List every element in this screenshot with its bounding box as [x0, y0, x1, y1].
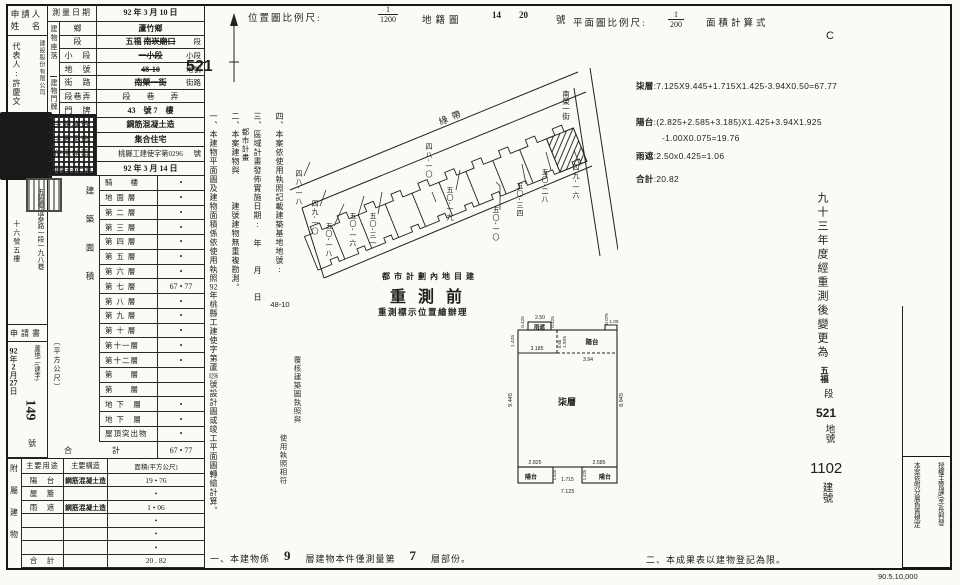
calc-line-balcony-2: -1.00X0.075=19.76 — [662, 133, 740, 143]
dim-3.185: 3.185 — [531, 346, 544, 352]
floor-label: 第 層 — [100, 368, 158, 382]
floor-plan-drawing: 雨遮 2.50 0.425 0.425 0.075 1.00 1.425 3.1… — [495, 310, 670, 525]
note-4-lot-number: 48-10 — [264, 300, 296, 309]
handwritten-lot-521: 521 — [186, 58, 213, 76]
floor-area-block: 建築面積 （平方公尺） 騎 樓 • 地 面 層 • 第 二 層 — [48, 176, 204, 442]
seal-stamp-large — [0, 112, 52, 180]
subsection-label: 小 段 — [60, 49, 97, 62]
dim-8.945: 8.945 — [619, 393, 625, 407]
stamp-retest-sub: 重測標示位置繪辦理 — [378, 306, 468, 318]
floor-row: 屋頂突出物 • — [100, 427, 204, 442]
note-4: 四、本案依使用執照記載建築基地地號: — [274, 112, 285, 307]
note-1: 一、本建物平面圖及建物面積係依使用執照92年桃縣工建使字第蘆0296號設計圖或竣… — [208, 112, 219, 562]
application-label: 申請書 — [6, 325, 48, 342]
cadastral-map-label: 地籍圖 — [422, 12, 463, 26]
annex-row: 合 計 20 . 82 — [22, 555, 204, 568]
balcony-label-top: 陽台 — [586, 337, 600, 346]
location-scale-numerator: 1 — [378, 5, 398, 15]
complete-date-row: 建築完成日期 92 年 3 月 14 日 — [48, 162, 204, 177]
floor-label: 騎 樓 — [100, 176, 158, 190]
floor-label: 第 八 層 — [100, 294, 158, 308]
subsection-strike: 一小段 — [139, 50, 163, 61]
complete-date-label: 建築完成日期 — [48, 162, 97, 176]
section-row: 段 五福 南崁廟口 段 — [60, 36, 204, 50]
mark-c: C — [826, 30, 834, 42]
floor-label: 第十二層 — [100, 353, 158, 367]
section-strike: 南崁廟口 — [144, 36, 176, 47]
survey-date-row: 測量日期 92 年 3 月 10 日 — [48, 4, 204, 22]
annex-use — [22, 514, 64, 526]
floor-total-row: 合 計 67 • 77 — [48, 442, 204, 458]
survey-date-value: 92 年 3 月 10 日 — [97, 4, 204, 21]
location-group-col: 建物座落 建物門牌 — [48, 22, 60, 117]
lot-label-48-10: 四八-一〇 — [424, 143, 434, 178]
dim-0.075: 0.075 — [604, 313, 609, 325]
annex-side-label: 附屬建物 — [10, 464, 18, 564]
license-row: 使用執照 桃縣工建使字第0296 號 — [48, 147, 204, 162]
authorization-box: 本案依照分層負責規定 授權主管課(室)長判發 — [902, 456, 952, 568]
floor-area-value: • — [158, 294, 204, 308]
floor-label: 地 下 層 — [100, 397, 158, 411]
right-divider-line — [902, 306, 903, 456]
annex-row: 屋 簷 • — [22, 487, 204, 500]
group-label-site: 建物座落 — [50, 22, 57, 76]
calc-total-label: 合計 — [636, 174, 654, 184]
verify-note-col-2: 使用執照相符 — [278, 434, 289, 509]
floor-area-value: • — [158, 309, 204, 323]
cadastral-unit: 號 — [556, 12, 566, 26]
use-label: 主要用途 — [48, 133, 97, 147]
location-scale-label: 位置圖比例尺: — [248, 10, 322, 24]
annex-area: • — [108, 541, 204, 553]
floor-area-value: • — [158, 324, 204, 338]
dim-0.425-left: 0.425 — [520, 316, 525, 328]
dim-1.425-bottom-right: 1.425 — [582, 469, 587, 480]
floor-row: 地 下 層 • — [100, 412, 204, 427]
floor-area-value: • — [158, 235, 204, 249]
annex-structure — [64, 514, 108, 526]
lot-label-50-10: 五〇-一〇 — [491, 206, 501, 241]
annex-area: • — [108, 528, 204, 540]
annex-use: 屋 簷 — [22, 487, 64, 499]
floor-row: 第 層 — [100, 383, 204, 398]
floor-area-value: • — [158, 220, 204, 234]
dim-0.425-right: 0.425 — [550, 316, 555, 328]
location-scale-denominator: 1200 — [378, 15, 398, 24]
receipt-year: 92 — [9, 347, 18, 355]
dim-2.825: 2.825 — [529, 460, 542, 466]
floor-area-value: • — [158, 176, 204, 190]
floor-label: 第 五 層 — [100, 250, 158, 264]
village-row: 鄉 蘆竹鄉 — [60, 22, 204, 36]
room-label-floor7: 柒層 — [558, 396, 576, 407]
annex-structure — [64, 528, 108, 540]
floor-row: 第 五 層 • — [100, 250, 204, 265]
eave-label: 雨遮 — [534, 323, 546, 331]
floor-row: 騎 樓 • — [100, 176, 204, 191]
receipt-number-unit: 號 — [28, 438, 36, 449]
floor-row: 第 十 層 • — [100, 324, 204, 339]
receipt-number-prefix: 蘆地二(建字) — [33, 345, 39, 397]
new-building-unit: 建號 — [821, 482, 832, 518]
note-1-num-92: 92 — [209, 283, 218, 291]
bottom-note-1-floor-measured: 7 — [410, 548, 418, 563]
annex-use: 合 計 — [22, 555, 64, 567]
floor-row: 第 二 層 • — [100, 206, 204, 221]
floor-label: 第 四 層 — [100, 235, 158, 249]
floor-area-value: • — [158, 250, 204, 264]
annex-structure — [64, 555, 108, 567]
receipt-month-unit: 月 — [9, 371, 18, 379]
floor-row: 地 下 層 • — [100, 397, 204, 412]
section-label: 段 — [60, 36, 97, 49]
annex-structure — [64, 487, 108, 499]
floor-area-value — [158, 368, 204, 382]
dim-0.50: 0.50 — [557, 339, 562, 348]
dim-1.00: 1.00 — [610, 319, 619, 324]
street-label: 街 路 — [60, 76, 97, 89]
annex-side-col: 附屬建物 — [6, 459, 22, 568]
note-1-pre: 一、本建物平面圖及建物面積係依使用執照 — [209, 112, 218, 283]
floor-area-value: • — [158, 353, 204, 367]
annex-use: 陽 台 — [22, 474, 64, 486]
dim-3.94: 3.94 — [583, 357, 593, 363]
annex-row: 陽 台 鋼筋混凝土造 19 • 76 — [22, 474, 204, 487]
floor-row: 第 層 — [100, 368, 204, 383]
floor-label: 第 層 — [100, 383, 158, 397]
structure-value: 鋼筋混凝土造 — [97, 118, 204, 132]
applicant-title-line1: 申請人 — [11, 8, 43, 20]
floor-area-side-col: 建築面積 （平方公尺） — [48, 176, 100, 442]
annex-area: • — [108, 487, 204, 499]
calc-total-body: :20.82 — [654, 174, 679, 184]
lot-label-48-18: 四八-一八 — [294, 170, 304, 205]
annex-table: 附屬建物 主要用途 主要構造 面積(平方公尺) 陽 台 鋼筋混凝土造 19 • … — [6, 458, 205, 568]
bottom-note-1-pre: 一、本建物係 — [210, 554, 270, 564]
floor-row: 第 九 層 • — [100, 309, 204, 324]
plan-scale-numerator: 1 — [668, 10, 684, 20]
annex-header-structure: 主要構造 — [64, 459, 108, 473]
lot-label-49-16: 四九-一六 — [571, 164, 581, 199]
street-strike: 南榮一街 — [135, 77, 167, 88]
floor-area-value: • — [158, 338, 204, 352]
section-handwritten: 五福 — [126, 36, 142, 47]
plan-scale-fraction: 1 200 — [668, 10, 684, 29]
cadastral-number-1: 14 — [492, 10, 501, 20]
lot-label-49-10: 四九-一〇 — [310, 200, 320, 235]
floor-total-label: 合 計 — [48, 442, 158, 458]
dim-1.925: 1.925 — [562, 336, 568, 348]
plan-scale-denominator: 200 — [668, 20, 684, 29]
floor-area-value: • — [158, 265, 204, 279]
new-section-name: 五福 — [820, 366, 829, 386]
lot-number-label: 地 號 — [60, 63, 97, 76]
annex-header-use: 主要用途 — [22, 459, 64, 473]
dim-9.445: 9.445 — [508, 393, 514, 407]
bottom-note-1-floors: 9 — [284, 548, 292, 563]
floor-label: 第 二 層 — [100, 206, 158, 220]
annex-header-area: 面積(平方公尺) — [108, 459, 204, 473]
calc-line-floor7: 柒層:7.125X9.445+1.715X1.425-3.94X0.50=67.… — [636, 80, 837, 92]
receipt-day: 27 — [9, 379, 18, 387]
lot-number-strike: 48-10 — [141, 65, 160, 74]
lot-label-50-31: 五〇-三一 — [368, 212, 378, 247]
balcony-label-bottom-right: 陽台 — [599, 473, 611, 481]
floor-row: 第 八 層 • — [100, 294, 204, 309]
floor-label: 第十一層 — [100, 338, 158, 352]
area-calc-label: 面積計算式 — [706, 15, 769, 29]
auth-text-left: 本案依照分層負責規定 — [912, 462, 919, 562]
print-code: 90.5.10,000 — [878, 572, 918, 581]
lot-label-50-19: 五〇-一九 — [445, 186, 455, 221]
applicant-title-line2: 姓 名 — [11, 20, 43, 32]
receipt-month: 2 — [9, 363, 18, 371]
floor-area-value: • — [158, 191, 204, 205]
lot-label-50-16: 五〇-一六 — [348, 212, 358, 247]
village-label: 鄉 — [60, 22, 97, 35]
survey-result-sheet: 申請人 姓 名 代表人:許慶文 建設股份有限公司 五股鄉成泰路一段一九八巷 十六… — [0, 0, 960, 585]
floor-row: 第 六 層 • — [100, 265, 204, 280]
auth-text-right: 授權主管課(室)長判發 — [936, 462, 943, 562]
floor-area-value: • — [158, 412, 204, 426]
dim-1.715: 1.715 — [561, 477, 574, 483]
lane-row: 段巷弄 段 巷 弄 — [60, 90, 204, 104]
bottom-note-1: 一、本建物係9層建物本件僅測量第7層部份。 — [210, 550, 471, 566]
floor-area-value: • — [158, 427, 204, 441]
location-block: 建物座落 建物門牌 鄉 蘆竹鄉 段 五福 南崁廟口 段 小 段 — [48, 22, 204, 118]
use-row: 主要用途 集合住宅 — [48, 133, 204, 148]
bottom-note-2: 二、本成果表以建物登記為限。 — [646, 553, 786, 566]
bottom-note-1-post: 層部份。 — [431, 554, 471, 564]
survey-date-label: 測量日期 — [48, 4, 97, 21]
street-row: 街 路 南榮一街 街路 — [60, 76, 204, 90]
note-3-sub: 都市計畫 — [240, 128, 251, 186]
annex-row: • — [22, 528, 204, 541]
license-unit: 號 — [194, 148, 202, 159]
location-scale-fraction: 1 1200 — [378, 5, 398, 24]
floor-area-value: 67 • 77 — [158, 279, 204, 293]
door-number-value: 43 號 7 樓 — [97, 103, 204, 117]
receipt-day-unit: 日 — [9, 387, 18, 395]
new-lot-number: 521 — [816, 406, 836, 420]
annex-header-row: 主要用途 主要構造 面積(平方公尺) — [22, 459, 204, 474]
note-1-post: 號設計圖或竣工平面圖轉繪計算。 — [209, 380, 218, 515]
north-arrow-icon — [222, 8, 246, 86]
annex-use: 雨 遮 — [22, 501, 64, 513]
receipt-number: 149 — [22, 400, 38, 421]
retest-change-note: 九十三年度經重測後變更為 — [816, 192, 827, 364]
calc-eave-body: :2.50x0.425=1.06 — [654, 151, 725, 161]
note-3: 三、區域計畫發佈實施日期: 年 月 日 — [252, 112, 263, 392]
calc-floor7-body: :7.125X9.445+1.715X1.425-3.94X0.50=67.77 — [654, 81, 838, 91]
license-label: 使用執照 — [48, 147, 97, 161]
annex-row: • — [22, 541, 204, 554]
dim-7.125: 7.125 — [561, 489, 575, 495]
calc-line-balcony: 陽台:(2.825+2.585+3.185)X1.425+3.94X1.925 — [636, 116, 822, 128]
village-value: 蘆竹鄉 — [97, 22, 204, 35]
structure-row: 主體構造 鋼筋混凝土造 — [48, 118, 204, 133]
floor-row: 第十二層 • — [100, 353, 204, 368]
street-suffix: 街路 — [186, 77, 201, 88]
annex-row: • — [22, 514, 204, 527]
street-name-label: 南榮一街 — [562, 90, 570, 152]
floor-label: 屋頂突出物 — [100, 427, 158, 441]
annex-structure: 鋼筋混凝土造 — [64, 474, 108, 486]
annex-use — [22, 541, 64, 553]
calc-eave-label: 雨遮 — [636, 151, 654, 161]
new-section-unit: 段 — [824, 386, 834, 400]
lane-label: 段巷弄 — [60, 90, 97, 103]
annex-structure: 鋼筋混凝土造 — [64, 501, 108, 513]
floor-row: 第 七 層 67 • 77 — [100, 279, 204, 294]
floor-area-side-unit: （平方公尺） — [53, 338, 60, 438]
floor-area-value — [158, 383, 204, 397]
plan-scale-label: 平面圖比例尺: — [573, 15, 647, 29]
balcony-label-bottom-left: 陽台 — [525, 473, 537, 481]
floor-total-value: 67 • 77 — [158, 442, 204, 458]
lane-value: 段 巷 弄 — [97, 90, 204, 103]
note-1-num-0296: 0296 — [209, 372, 218, 380]
floor-area-value: • — [158, 397, 204, 411]
floor-label: 第 六 層 — [100, 265, 158, 279]
group-label-door: 建物門牌 — [50, 76, 57, 116]
floor-label: 地 下 層 — [100, 412, 158, 426]
dim-1.425-bottom-left: 1.425 — [552, 469, 557, 480]
lot-label-50-28: 五〇-二八 — [540, 168, 550, 203]
floor-label: 第 九 層 — [100, 309, 158, 323]
dim-2.585: 2.585 — [593, 460, 606, 466]
annex-area: 20 . 82 — [108, 555, 204, 567]
receipt-year-unit: 年 — [9, 355, 18, 363]
floor-row: 地 面 層 • — [100, 191, 204, 206]
calc-balcony-label: 陽台 — [636, 117, 654, 127]
floor-row: 第 三 層 • — [100, 220, 204, 235]
floor-label: 第 十 層 — [100, 324, 158, 338]
receipt-box: 92年2月27日 蘆地二(建字) 149 號 — [6, 342, 48, 458]
verify-note-col-1: 覆核建築圖執照與 — [292, 356, 303, 464]
door-number-label: 門 牌 — [60, 103, 97, 117]
annex-structure — [64, 541, 108, 553]
new-lot-unit: 地號 — [823, 424, 833, 456]
complete-date-value: 92 年 3 月 14 日 — [97, 162, 204, 176]
floor-area-value: • — [158, 206, 204, 220]
address-line-2: 十六號五樓 — [11, 220, 18, 300]
calc-floor7-label: 柒層 — [636, 81, 654, 91]
section-suffix: 段 — [194, 36, 202, 47]
floor-row: 第十一層 • — [100, 338, 204, 353]
floor-row: 第 四 層 • — [100, 235, 204, 250]
annex-use — [22, 528, 64, 540]
structure-label: 主體構造 — [48, 118, 97, 132]
application-text: 申請書 — [10, 328, 43, 339]
building-info-block: 主體構造 鋼筋混凝土造 主要用途 集合住宅 使用執照 桃縣工建使字第0296 號… — [48, 118, 204, 176]
calc-line-total: 合計:20.82 — [636, 173, 679, 185]
floor-area-side-label: 建築面積 — [86, 186, 95, 336]
building-data-table: 測量日期 92 年 3 月 10 日 建物座落 建物門牌 鄉 蘆竹鄉 段 五福 … — [48, 4, 205, 458]
floor-rows: 騎 樓 • 地 面 層 • 第 二 層 • 第 三 層 — [100, 176, 204, 442]
lot-label-50-34: 五〇-三四 — [515, 182, 525, 217]
dim-2.50: 2.50 — [535, 315, 545, 321]
applicant-name-box: 申請人 姓 名 — [6, 4, 48, 36]
license-value: 桃縣工建使字第0296 — [118, 149, 183, 159]
new-building-number: 1102 — [810, 460, 842, 477]
note-1-mid: 年桃縣工建使字第蘆 — [209, 291, 218, 372]
floor-label: 第 七 層 — [100, 279, 158, 293]
calc-balcony-body: :(2.825+2.585+3.185)X1.425+3.94X1.925 — [654, 117, 822, 127]
bottom-note-1-mid: 層建物本件僅測量第 — [306, 554, 396, 564]
receipt-date: 92年2月27日 — [9, 347, 17, 453]
annex-area: 19 • 76 — [108, 474, 204, 486]
lot-number-row: 地 號 48-10 地號 — [60, 63, 204, 77]
annex-area: • — [108, 514, 204, 526]
dim-1.425-topleft: 1.425 — [510, 335, 516, 347]
annex-row: 雨 遮 鋼筋混凝土造 1 • 06 — [22, 501, 204, 514]
door-number-row: 門 牌 43 號 7 樓 — [60, 103, 204, 117]
calc-line-eave: 雨遮:2.50x0.425=1.06 — [636, 150, 724, 162]
use-value: 集合住宅 — [97, 133, 204, 147]
lot-label-50-18: 五〇-一八 — [324, 222, 334, 257]
floor-label: 第 三 層 — [100, 220, 158, 234]
annex-area: 1 • 06 — [108, 501, 204, 513]
floor-label: 地 面 層 — [100, 191, 158, 205]
cadastral-number-2: 20 — [519, 10, 528, 20]
subsection-row: 小 段 一小段 小段 — [60, 49, 204, 63]
